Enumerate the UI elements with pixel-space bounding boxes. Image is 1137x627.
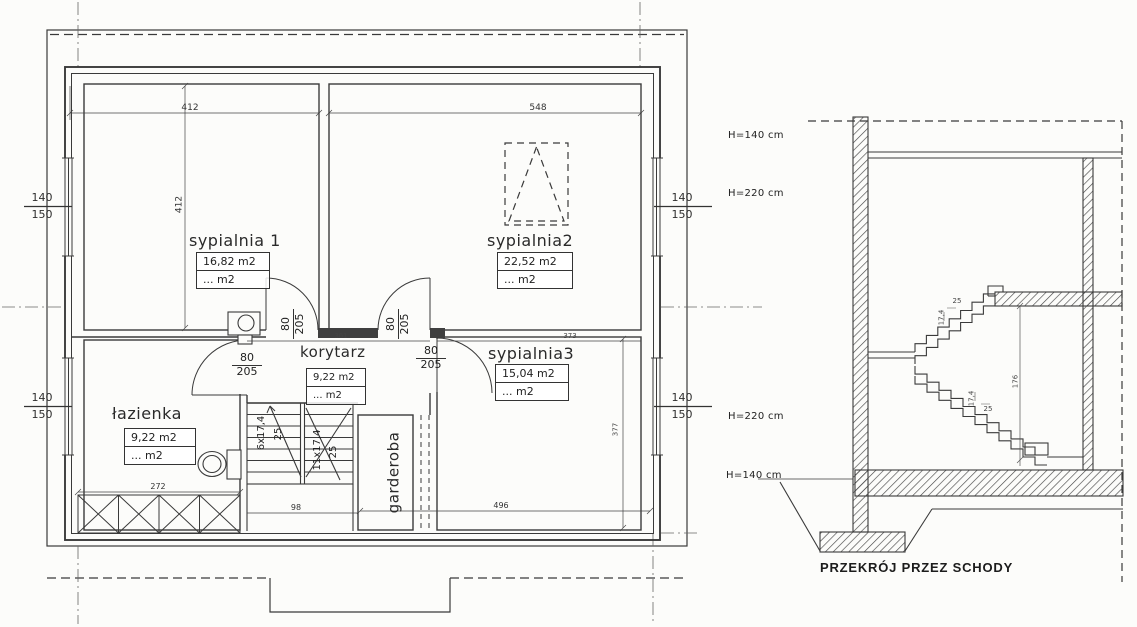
door-width: 80 — [385, 317, 397, 331]
window-dim-right-top-sill: 150 — [666, 209, 698, 220]
door-height: 205 — [399, 314, 411, 335]
dim-top-left: 412 — [175, 104, 205, 113]
dim-lazienka-width: 272 — [144, 483, 172, 491]
window-dim-left-bottom-sill: 150 — [26, 409, 58, 420]
dim-sypialnia1-depth: 412 — [176, 190, 185, 220]
stairs-section — [758, 117, 1123, 582]
dim-stairs-width: 98 — [282, 504, 310, 512]
room-name-sypialnia3: sypialnia3 — [488, 346, 574, 362]
area-box-lazienka: 9,22 m2 ... m2 — [124, 428, 196, 465]
area-alt-value: ... m2 — [197, 270, 269, 288]
area-alt-value: ... m2 — [307, 386, 365, 404]
area-value: 16,82 m2 — [197, 253, 269, 270]
room-name-sypialnia2: sypialnia2 — [487, 233, 573, 249]
exterior-walls — [65, 67, 660, 540]
window-dim-right-bottom-width: 140 — [666, 392, 698, 403]
window-dim-left-top-width: 140 — [26, 192, 58, 203]
door-width: 80 — [280, 317, 292, 331]
section-height-top-upper: H=140 cm — [728, 131, 784, 141]
stairs-run-b-label: 25 — [329, 435, 339, 469]
section-rise-top: 17,4 — [939, 306, 946, 330]
section-height-top-lower: H=220 cm — [728, 189, 784, 199]
door-dim-sypialnia2: 80 205 — [385, 309, 411, 339]
room-name-garderoba: garderoba — [387, 428, 402, 518]
door-height: 205 — [421, 359, 442, 371]
area-value: 9,22 m2 — [125, 429, 195, 446]
section-mid-height: 176 — [1013, 369, 1020, 395]
door-width: 80 — [240, 352, 254, 364]
section-landing-slab — [988, 286, 1122, 306]
area-alt-value: ... m2 — [125, 446, 195, 464]
room-name-sypialnia1: sypialnia 1 — [189, 233, 281, 249]
dim-korytarz-width: 361 — [327, 333, 355, 340]
door-dim-sypialnia3: 80 205 — [416, 345, 446, 371]
bathtub-hatch — [78, 495, 240, 533]
room-name-lazienka: łazienka — [112, 406, 182, 422]
section-floor-foundation — [758, 470, 1123, 552]
toilet-symbol — [198, 450, 241, 479]
window-dim-right-top-width: 140 — [666, 192, 698, 203]
area-box-sypialnia3: 15,04 m2 ... m2 — [495, 364, 569, 401]
section-height-bottom-lower: H=140 cm — [726, 471, 782, 481]
floor-plan — [2, 2, 762, 624]
area-value: 22,52 m2 — [498, 253, 572, 270]
section-run-top: 25 — [946, 298, 968, 305]
section-height-bottom-upper: H=220 cm — [728, 412, 784, 422]
door-dim-lazienka: 80 205 — [232, 352, 262, 378]
dim-sypialnia3-depth: 377 — [613, 417, 620, 443]
drawing-linework — [0, 0, 1137, 627]
washbasin-symbol — [228, 312, 260, 344]
window-dim-left-top-sill: 150 — [26, 209, 58, 220]
door-dim-sypialnia1: 80 205 — [280, 309, 306, 339]
area-box-sypialnia2: 22,52 m2 ... m2 — [497, 252, 573, 289]
area-box-korytarz: 9,22 m2 ... m2 — [306, 368, 366, 405]
dim-bottom-right: 496 — [487, 502, 515, 510]
section-stair-flights — [868, 294, 1083, 466]
stairs-flight-b-label: 11x17,4 — [313, 424, 323, 476]
door-height: 205 — [294, 314, 306, 335]
area-value: 9,22 m2 — [307, 369, 365, 386]
window-dim-left-bottom-width: 140 — [26, 392, 58, 403]
door-width: 80 — [424, 345, 438, 357]
section-run-bottom: 25 — [977, 406, 999, 413]
area-alt-value: ... m2 — [498, 270, 572, 288]
area-value: 15,04 m2 — [496, 365, 568, 382]
dim-top-right: 548 — [523, 104, 553, 113]
dim-sypialnia3-width: 373 — [556, 333, 584, 340]
stairs-run-a-label: 25 — [274, 417, 284, 451]
window-dim-right-bottom-sill: 150 — [666, 409, 698, 420]
skylight-symbol — [505, 143, 568, 225]
section-title: PRZEKRÓJ PRZEZ SCHODY — [820, 561, 1013, 574]
door-height: 205 — [237, 366, 258, 378]
stairs-flight-a-label: 6x17,4 — [257, 410, 267, 456]
room-name-korytarz: korytarz — [300, 345, 366, 360]
floor-plan-drawing: sypialnia 1 sypialnia2 sypialnia3 koryta… — [0, 0, 1137, 627]
area-box-sypialnia1: 16,82 m2 ... m2 — [196, 252, 270, 289]
roof-outline — [47, 30, 687, 612]
section-rise-bottom: 17,4 — [969, 387, 976, 411]
area-alt-value: ... m2 — [496, 382, 568, 400]
